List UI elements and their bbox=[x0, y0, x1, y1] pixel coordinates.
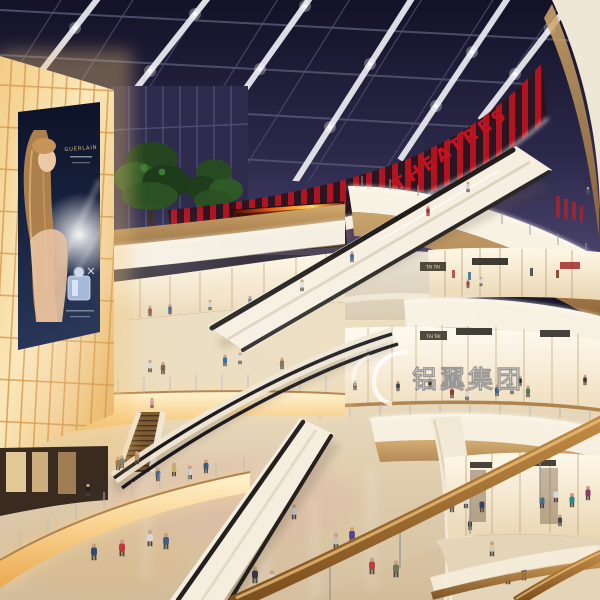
store-sign-bar bbox=[470, 462, 492, 468]
mall-atrium-rendering: THEATRES TAI TAI bbox=[0, 0, 600, 600]
atrium-scene: THEATRES TAI TAI bbox=[0, 0, 600, 600]
haze bbox=[60, 200, 240, 320]
watermark-text: 铝翼集团 bbox=[412, 365, 524, 394]
store-sign-red bbox=[560, 262, 580, 269]
